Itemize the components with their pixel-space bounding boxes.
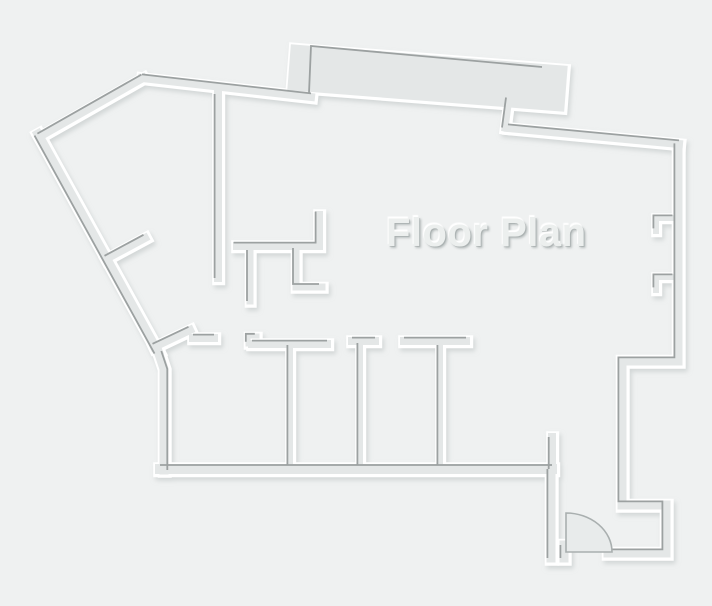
door-swing	[566, 513, 612, 552]
floor-plan-page: Floor Plan	[0, 0, 712, 606]
wall-north-slab	[312, 69, 543, 87]
wall-kitchen-stub-2-halo	[297, 252, 323, 288]
wall-fill-layer	[38, 69, 679, 558]
wall-nw-upper-diagonal-edge	[37, 75, 141, 134]
floor-plan-title: Floor Plan	[386, 211, 587, 256]
wall-kitchen-wall-edge	[234, 212, 316, 243]
floor-plan-canvas	[0, 0, 712, 606]
wall-east-south-wall-edge	[604, 143, 674, 549]
door-layer	[566, 513, 612, 552]
wall-nw-upper-diagonal	[39, 78, 143, 137]
